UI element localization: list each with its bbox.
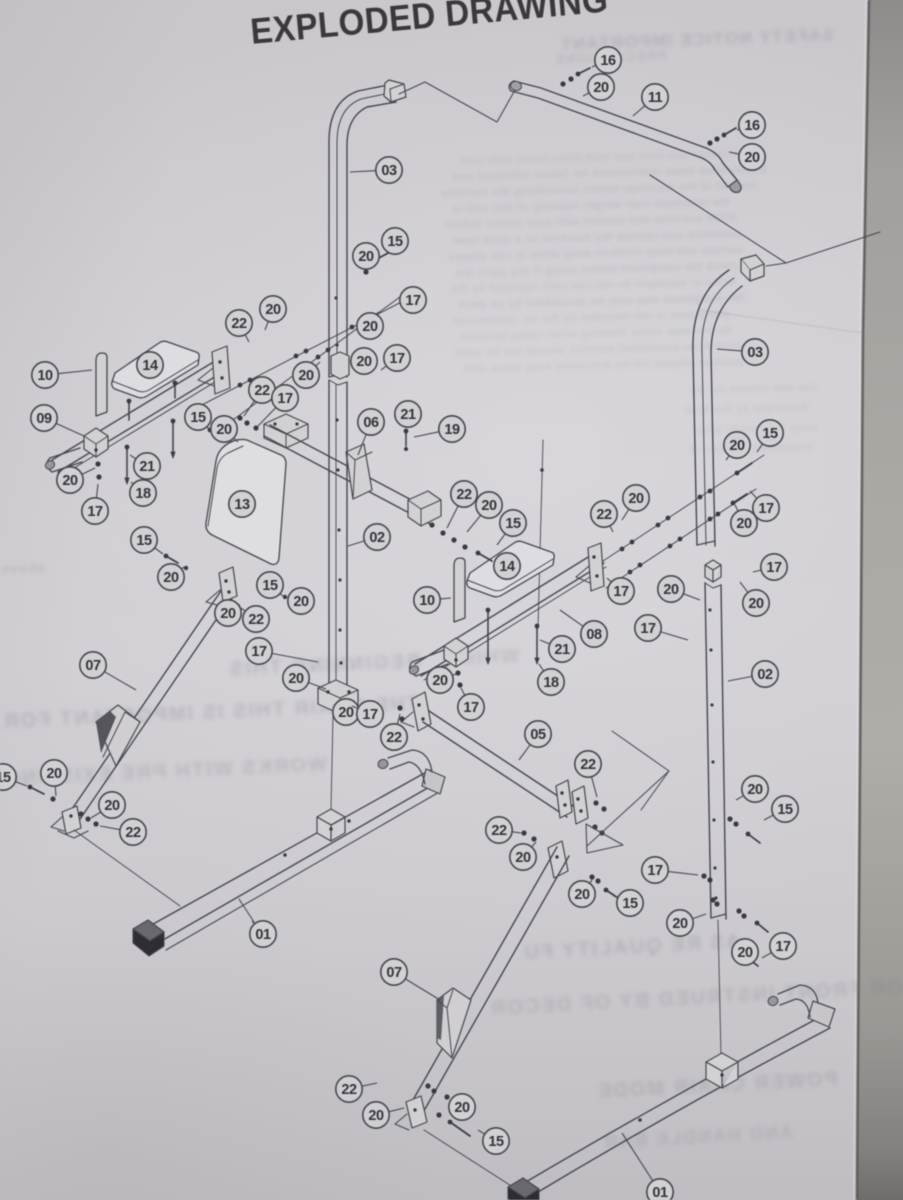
svg-text:11: 11	[648, 90, 663, 106]
svg-text:03: 03	[747, 345, 763, 361]
svg-text:20: 20	[104, 798, 120, 814]
svg-text:14: 14	[142, 358, 158, 374]
svg-text:15: 15	[387, 234, 403, 250]
svg-text:16: 16	[600, 53, 616, 69]
svg-text:08: 08	[586, 627, 602, 643]
svg-text:20: 20	[574, 887, 590, 903]
svg-text:20: 20	[748, 596, 764, 612]
svg-text:10: 10	[37, 368, 53, 384]
svg-text:20: 20	[62, 473, 78, 489]
svg-text:17: 17	[640, 621, 656, 637]
svg-text:21: 21	[139, 459, 155, 475]
svg-text:17: 17	[277, 391, 293, 407]
svg-text:17: 17	[389, 351, 405, 367]
svg-text:09: 09	[36, 411, 52, 427]
svg-text:22: 22	[125, 825, 141, 841]
svg-text:17: 17	[766, 560, 782, 576]
svg-text:15: 15	[505, 516, 521, 532]
svg-text:20: 20	[515, 850, 531, 866]
svg-text:17: 17	[362, 707, 378, 723]
svg-text:22: 22	[341, 1082, 357, 1098]
svg-text:20: 20	[744, 150, 760, 166]
svg-text:16: 16	[744, 118, 760, 134]
svg-text:20: 20	[368, 1108, 384, 1124]
svg-text:02: 02	[369, 530, 385, 546]
svg-text:17: 17	[613, 584, 629, 600]
svg-text:20: 20	[216, 422, 232, 438]
svg-text:19: 19	[444, 422, 460, 438]
svg-text:20: 20	[338, 705, 354, 721]
svg-text:20: 20	[288, 671, 304, 687]
svg-text:15: 15	[777, 802, 793, 818]
svg-text:17: 17	[775, 939, 791, 955]
svg-text:17: 17	[758, 501, 774, 517]
svg-text:22: 22	[580, 757, 596, 773]
svg-text:20: 20	[293, 594, 309, 610]
svg-text:20: 20	[729, 438, 745, 454]
svg-text:20: 20	[298, 368, 314, 384]
svg-text:20: 20	[362, 319, 378, 335]
svg-text:15: 15	[488, 1134, 504, 1150]
svg-text:21: 21	[400, 407, 416, 423]
svg-text:22: 22	[456, 487, 472, 503]
svg-text:20: 20	[265, 302, 281, 318]
svg-text:20: 20	[663, 582, 679, 598]
svg-text:22: 22	[491, 823, 507, 839]
svg-text:20: 20	[593, 80, 609, 96]
svg-text:20: 20	[737, 945, 753, 961]
svg-text:06: 06	[363, 415, 379, 431]
svg-text:20: 20	[628, 491, 644, 507]
svg-text:05: 05	[530, 727, 546, 743]
svg-text:20: 20	[747, 782, 763, 798]
svg-text:15: 15	[762, 426, 778, 442]
svg-text:22: 22	[386, 730, 402, 746]
svg-text:15: 15	[190, 410, 206, 426]
svg-text:07: 07	[386, 965, 402, 981]
svg-text:20: 20	[220, 606, 236, 622]
svg-text:15: 15	[622, 896, 638, 912]
svg-text:15: 15	[0, 770, 11, 786]
svg-text:14: 14	[499, 559, 515, 575]
svg-text:13: 13	[234, 497, 250, 513]
svg-text:20: 20	[454, 1100, 470, 1116]
svg-text:22: 22	[231, 316, 247, 332]
svg-text:20: 20	[736, 516, 752, 532]
svg-text:20: 20	[358, 249, 374, 265]
svg-text:22: 22	[254, 383, 270, 399]
svg-text:18: 18	[543, 675, 559, 691]
svg-text:17: 17	[405, 293, 421, 309]
svg-text:01: 01	[255, 927, 271, 943]
svg-text:21: 21	[554, 642, 570, 658]
svg-text:18: 18	[135, 486, 151, 502]
svg-text:10: 10	[419, 593, 435, 609]
svg-text:22: 22	[248, 612, 264, 628]
svg-text:07: 07	[85, 658, 101, 674]
svg-text:20: 20	[481, 498, 497, 514]
svg-text:15: 15	[136, 533, 152, 549]
svg-text:17: 17	[463, 700, 479, 716]
svg-text:22: 22	[596, 507, 612, 523]
svg-text:20: 20	[432, 673, 448, 689]
svg-text:02: 02	[757, 667, 773, 683]
svg-text:20: 20	[46, 766, 62, 782]
svg-text:17: 17	[87, 504, 103, 520]
svg-text:03: 03	[381, 163, 397, 179]
svg-text:20: 20	[163, 570, 179, 586]
svg-text:17: 17	[251, 644, 267, 660]
svg-text:20: 20	[356, 354, 372, 370]
svg-text:20: 20	[672, 916, 688, 932]
svg-text:17: 17	[647, 863, 663, 879]
svg-text:15: 15	[262, 578, 278, 594]
svg-text:01: 01	[652, 1185, 668, 1200]
